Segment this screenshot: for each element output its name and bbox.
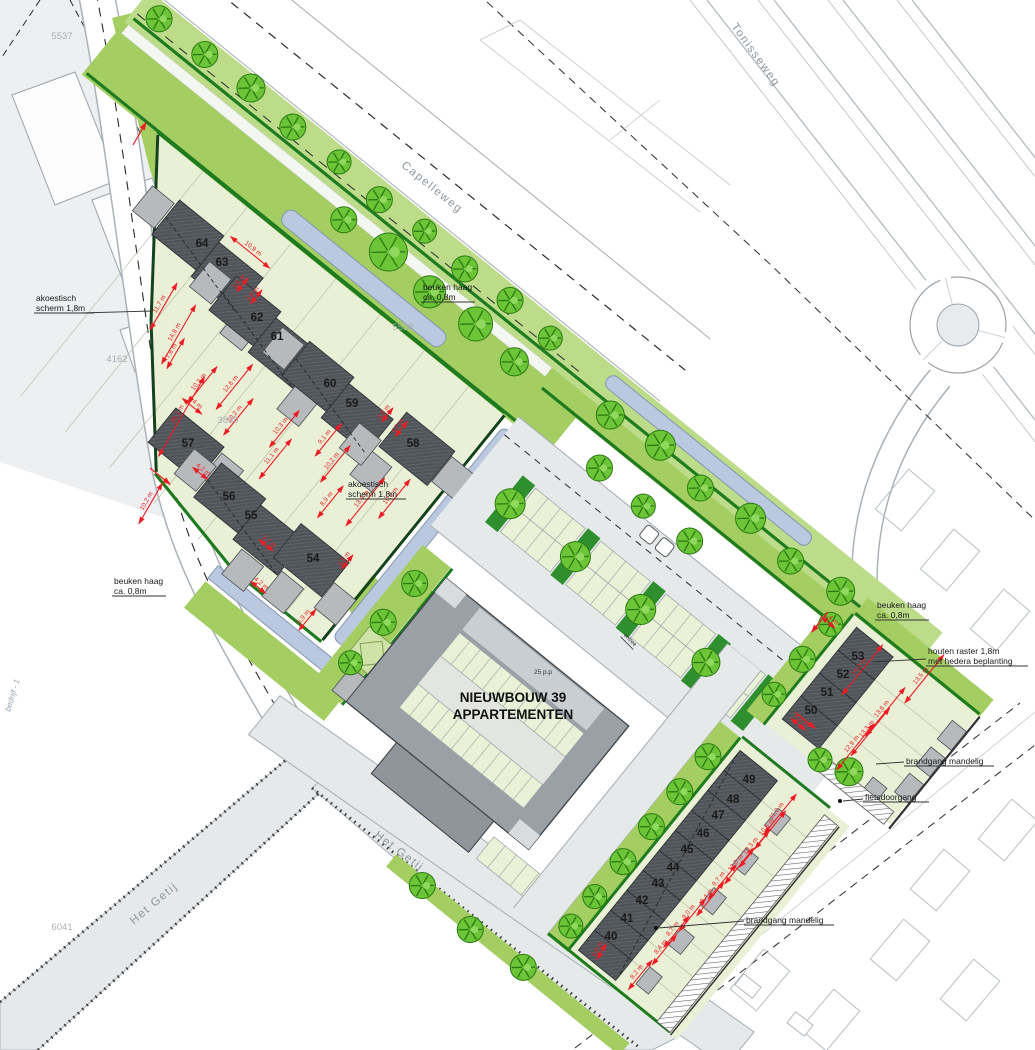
svg-text:akoestisch: akoestisch [36, 293, 76, 303]
parcel-number: 5537 [51, 31, 72, 42]
svg-text:scherm 1,8m: scherm 1,8m [348, 489, 397, 499]
house-number-58: 58 [407, 438, 420, 450]
house-number-51: 51 [821, 687, 834, 699]
svg-text:houten raster 1,8m: houten raster 1,8m [928, 646, 999, 656]
site-plan-drawing: 10,9 m3,8 m3,8 m11,7 m14,8 m7,6 m10,2 m1… [0, 0, 1035, 1050]
svg-text:ca. 0,8m: ca. 0,8m [877, 610, 910, 620]
house-number-54: 54 [307, 553, 320, 565]
house-number-50: 50 [805, 705, 818, 717]
svg-text:ca. 0,8m: ca. 0,8m [423, 292, 456, 302]
house-number-41: 41 [621, 913, 634, 925]
house-number-52: 52 [837, 669, 850, 681]
house-number-62: 62 [251, 312, 264, 324]
house-number-47: 47 [712, 810, 725, 822]
house-number-57: 57 [182, 438, 195, 450]
svg-text:met hedera beplanting: met hedera beplanting [928, 656, 1013, 666]
house-number-59: 59 [346, 398, 359, 410]
house-number-40: 40 [605, 931, 618, 943]
parcel-number: 5538 [392, 322, 413, 333]
house-number-55: 55 [245, 510, 258, 522]
svg-text:beuken haag: beuken haag [877, 600, 926, 610]
house-number-44: 44 [667, 862, 680, 874]
svg-text:brandgang mandelig: brandgang mandelig [746, 915, 824, 925]
house-number-53: 53 [852, 651, 865, 663]
beuken-haag-2-label: beuken haagca. 0,8m [112, 576, 166, 596]
site-plan-canvas: 10,9 m3,8 m3,8 m11,7 m14,8 m7,6 m10,2 m1… [0, 0, 1035, 1050]
house-number-64: 64 [196, 238, 209, 250]
house-number-42: 42 [636, 895, 649, 907]
svg-text:ca. 0,8m: ca. 0,8m [114, 586, 147, 596]
parcel-number: 4162 [106, 354, 127, 365]
svg-text:brandgang mandelig: brandgang mandelig [906, 756, 984, 766]
svg-text:beuken haag: beuken haag [114, 576, 163, 586]
svg-text:APPARTEMENTEN: APPARTEMENTEN [453, 707, 574, 722]
house-number-49: 49 [743, 774, 756, 786]
svg-text:fietsdoorgang: fietsdoorgang [865, 792, 917, 802]
svg-text:akoestisch: akoestisch [348, 479, 388, 489]
svg-text:NIEUWBOUW 39: NIEUWBOUW 39 [460, 690, 567, 705]
house-number-45: 45 [681, 844, 694, 856]
house-number-43: 43 [652, 878, 665, 890]
svg-text:beuken haag: beuken haag [423, 282, 472, 292]
house-number-60: 60 [324, 378, 337, 390]
parcel-number: 3830 [217, 415, 238, 426]
zone-label: bedrijf - 1 [3, 678, 21, 713]
house-number-46: 46 [697, 828, 710, 840]
house-number-63: 63 [216, 257, 229, 269]
parking-count-label: 25 p.p [534, 669, 552, 676]
house-number-56: 56 [223, 491, 236, 503]
street-name: Tonisseweg [729, 21, 783, 89]
parcel-number: 6041 [51, 922, 72, 933]
svg-text:scherm 1,8m: scherm 1,8m [36, 303, 85, 313]
house-number-48: 48 [727, 794, 740, 806]
house-number-61: 61 [271, 331, 284, 343]
